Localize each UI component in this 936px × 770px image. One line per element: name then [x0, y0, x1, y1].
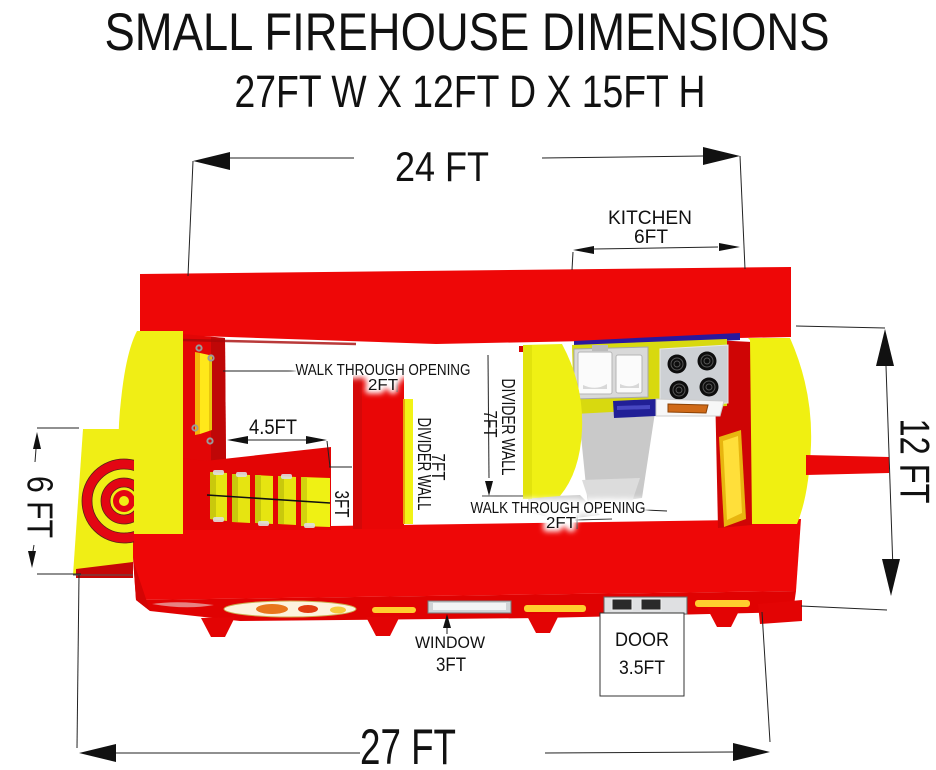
- svg-text:3FT: 3FT: [330, 491, 352, 518]
- svg-text:12 FT: 12 FT: [892, 419, 936, 504]
- svg-text:DOOR: DOOR: [615, 630, 669, 651]
- svg-text:SMALL FIREHOUSE DIMENSIONS: SMALL FIREHOUSE DIMENSIONS: [105, 3, 830, 62]
- svg-text:2FT: 2FT: [368, 377, 399, 394]
- svg-text:WINDOW: WINDOW: [415, 633, 485, 652]
- svg-text:3.5FT: 3.5FT: [619, 658, 665, 679]
- svg-text:6 FT: 6 FT: [20, 476, 61, 538]
- svg-text:4.5FT: 4.5FT: [249, 416, 297, 439]
- svg-text:24 FT: 24 FT: [395, 143, 489, 190]
- svg-text:7FT: 7FT: [428, 454, 448, 481]
- svg-text:2FT: 2FT: [546, 515, 577, 532]
- svg-text:27FT W X 12FT D X 15FT H: 27FT W X 12FT D X 15FT H: [235, 66, 706, 117]
- svg-text:3FT: 3FT: [436, 655, 466, 676]
- svg-text:6FT: 6FT: [634, 227, 668, 248]
- svg-text:27 FT: 27 FT: [360, 719, 456, 770]
- svg-text:KITCHEN: KITCHEN: [608, 208, 692, 229]
- svg-text:DIVIDER WALL: DIVIDER WALL: [498, 379, 518, 476]
- svg-text:7FT: 7FT: [480, 411, 500, 438]
